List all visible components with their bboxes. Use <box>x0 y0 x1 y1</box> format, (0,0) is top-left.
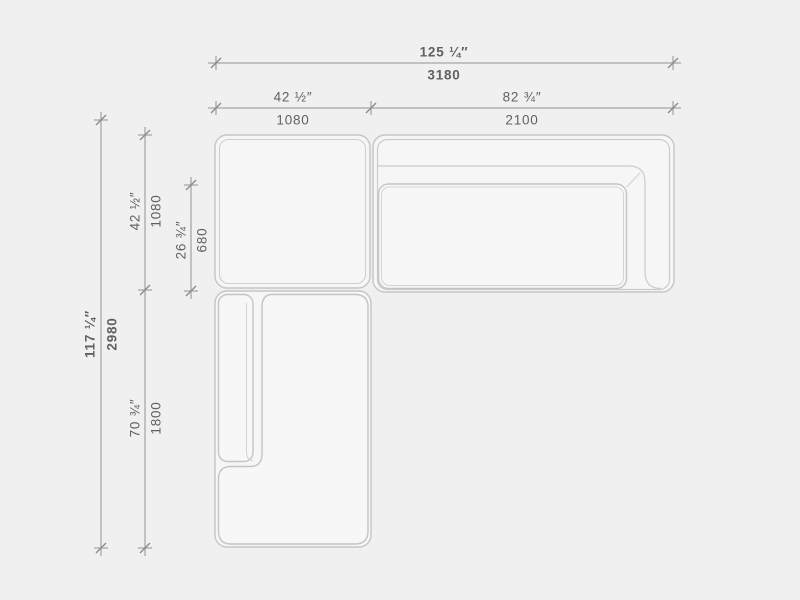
dim-seat-depth-inches: 26 ¾″ <box>174 221 188 260</box>
dim-left-section-width-mm: 1080 <box>276 113 309 127</box>
dim-chaise-depth-mm: 1800 <box>149 401 163 434</box>
dim-total-width-inches: 125 ¼″ <box>420 45 469 59</box>
dim-seat-depth-mm: 680 <box>195 228 209 253</box>
sofa-plan-canvas: 125 ¼″ 3180 42 ½″ 1080 82 ¾″ 2100 117 ¼″… <box>0 0 800 600</box>
dim-total-depth-mm: 2980 <box>105 317 119 350</box>
dim-chaise-depth-inches: 70 ¾″ <box>128 399 142 438</box>
corner-module-outline <box>215 135 370 288</box>
dim-corner-module-depth-mm: 1080 <box>149 194 163 227</box>
dim-right-section-width-inches: 82 ¾″ <box>503 90 542 104</box>
dimension-tick-stubs <box>94 56 673 548</box>
chaise-module <box>215 291 371 547</box>
corner-module <box>215 135 370 288</box>
dim-total-depth-inches: 117 ¼″ <box>83 310 97 358</box>
chaise-back-cushion <box>219 295 254 462</box>
dim-right-section-width-mm: 2100 <box>505 113 538 127</box>
dim-corner-module-depth-inches: 42 ½″ <box>128 192 142 231</box>
dim-total-width-mm: 3180 <box>427 68 460 82</box>
dimension-tick-slashes <box>96 58 678 553</box>
dimension-lines <box>94 56 681 556</box>
right-sofa-seat-cushion <box>379 184 627 289</box>
sofa-plan-drawing <box>0 0 800 600</box>
right-sofa-module <box>373 135 674 292</box>
dim-left-section-width-inches: 42 ½″ <box>274 90 313 104</box>
